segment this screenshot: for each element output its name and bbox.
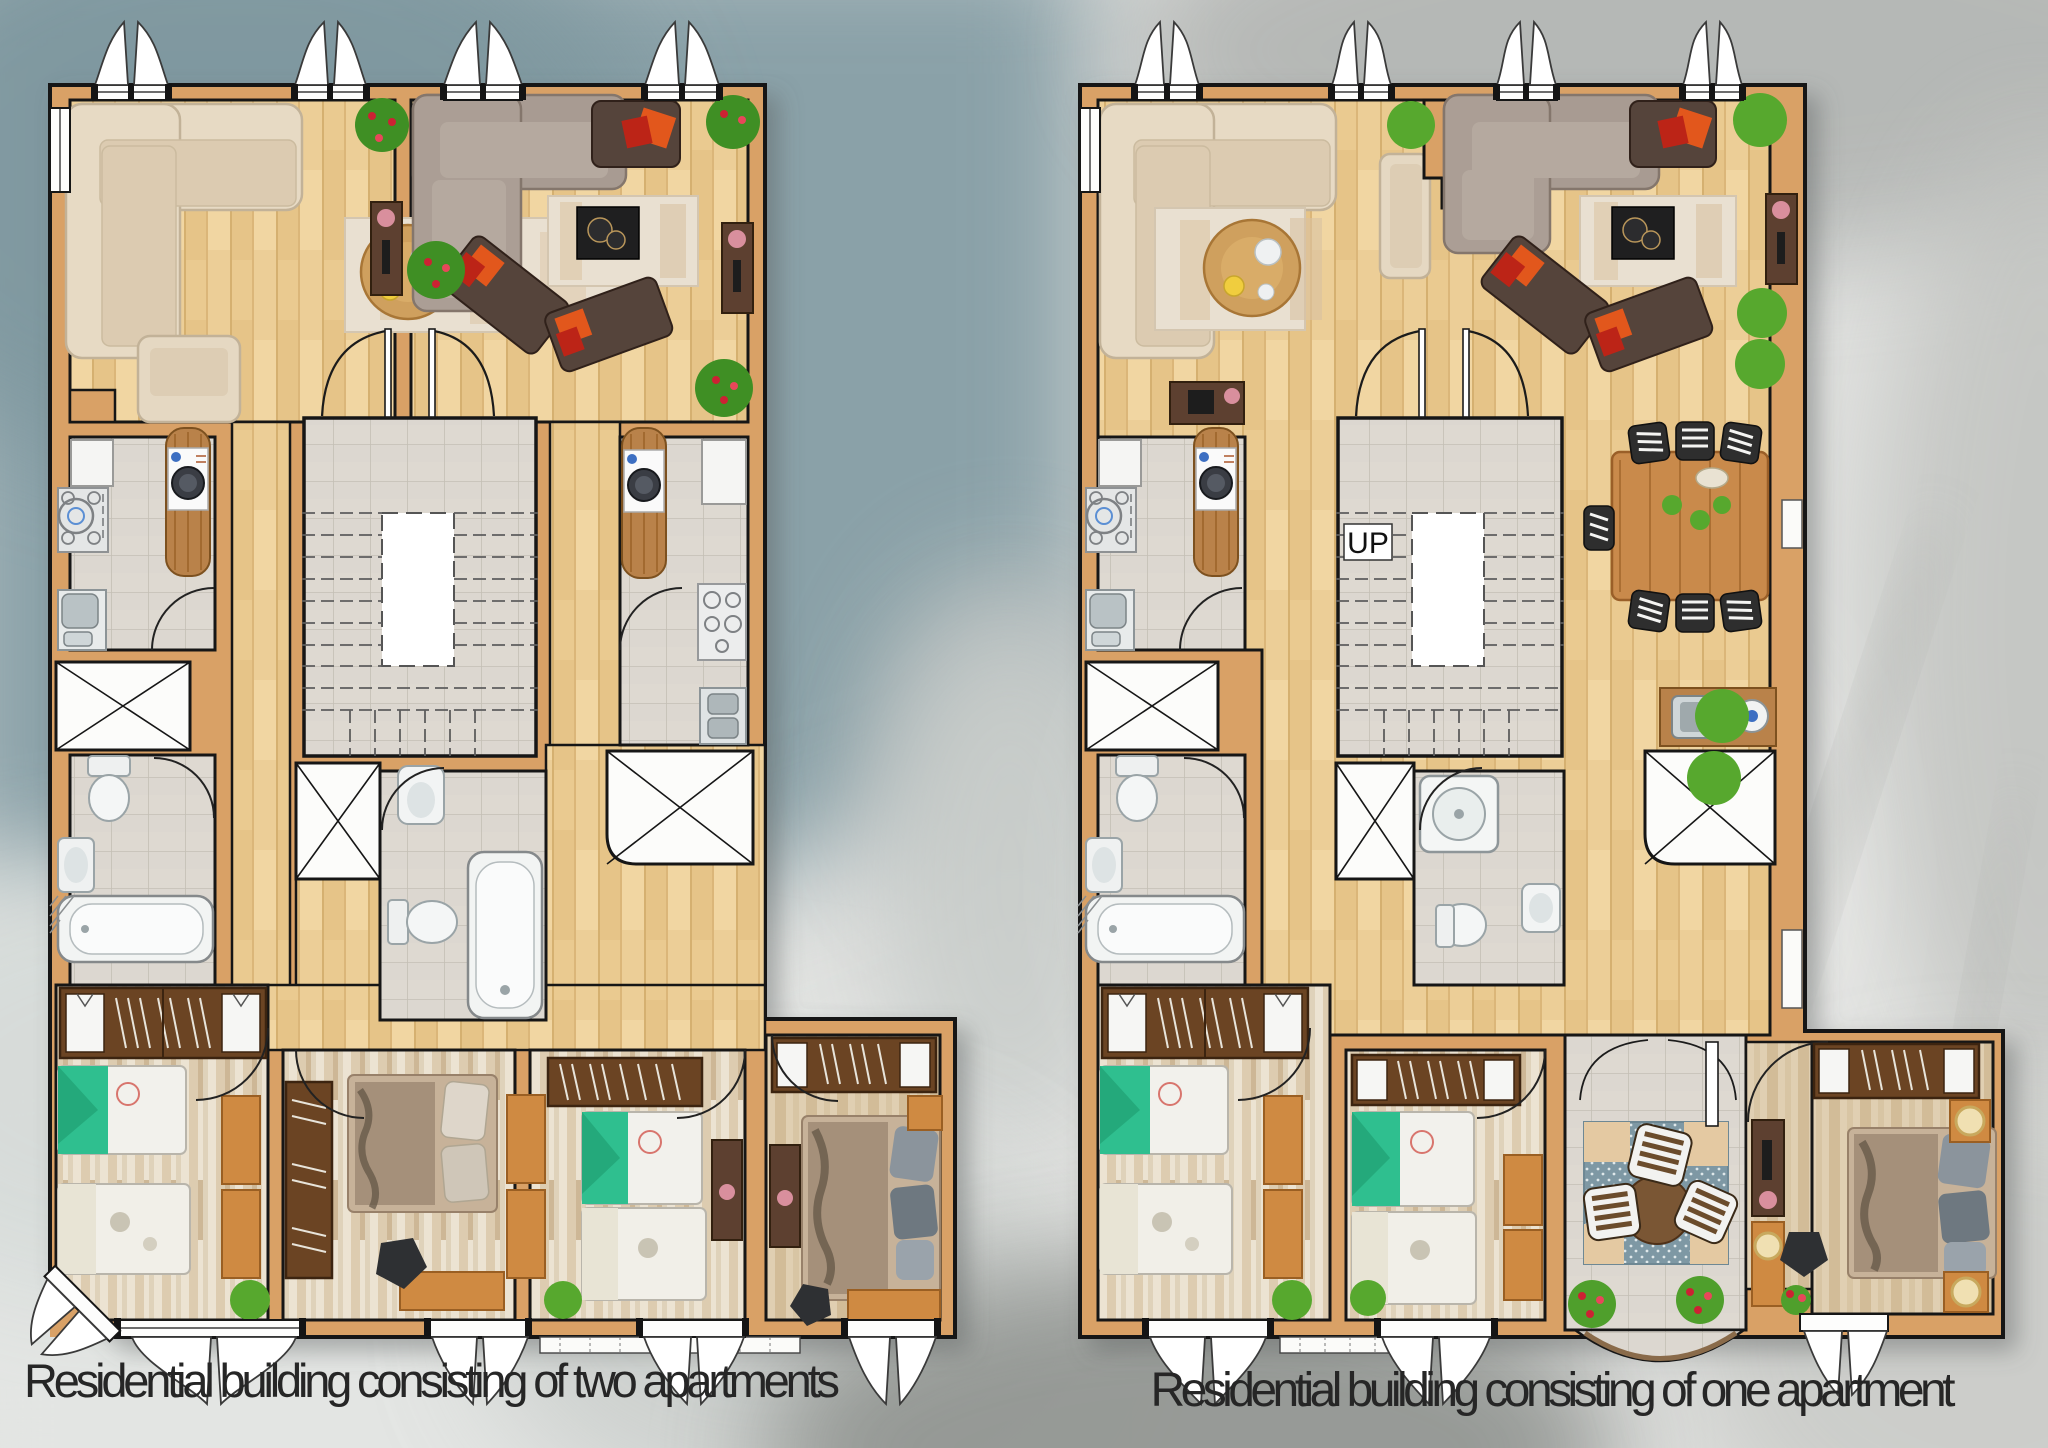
svg-text:UP: UP (1347, 527, 1389, 560)
svg-text:Residential building consistin: Residential building consisting of one a… (1151, 1364, 1956, 1417)
svg-text:Residential building consistin: Residential building consisting of two a… (24, 1354, 840, 1407)
